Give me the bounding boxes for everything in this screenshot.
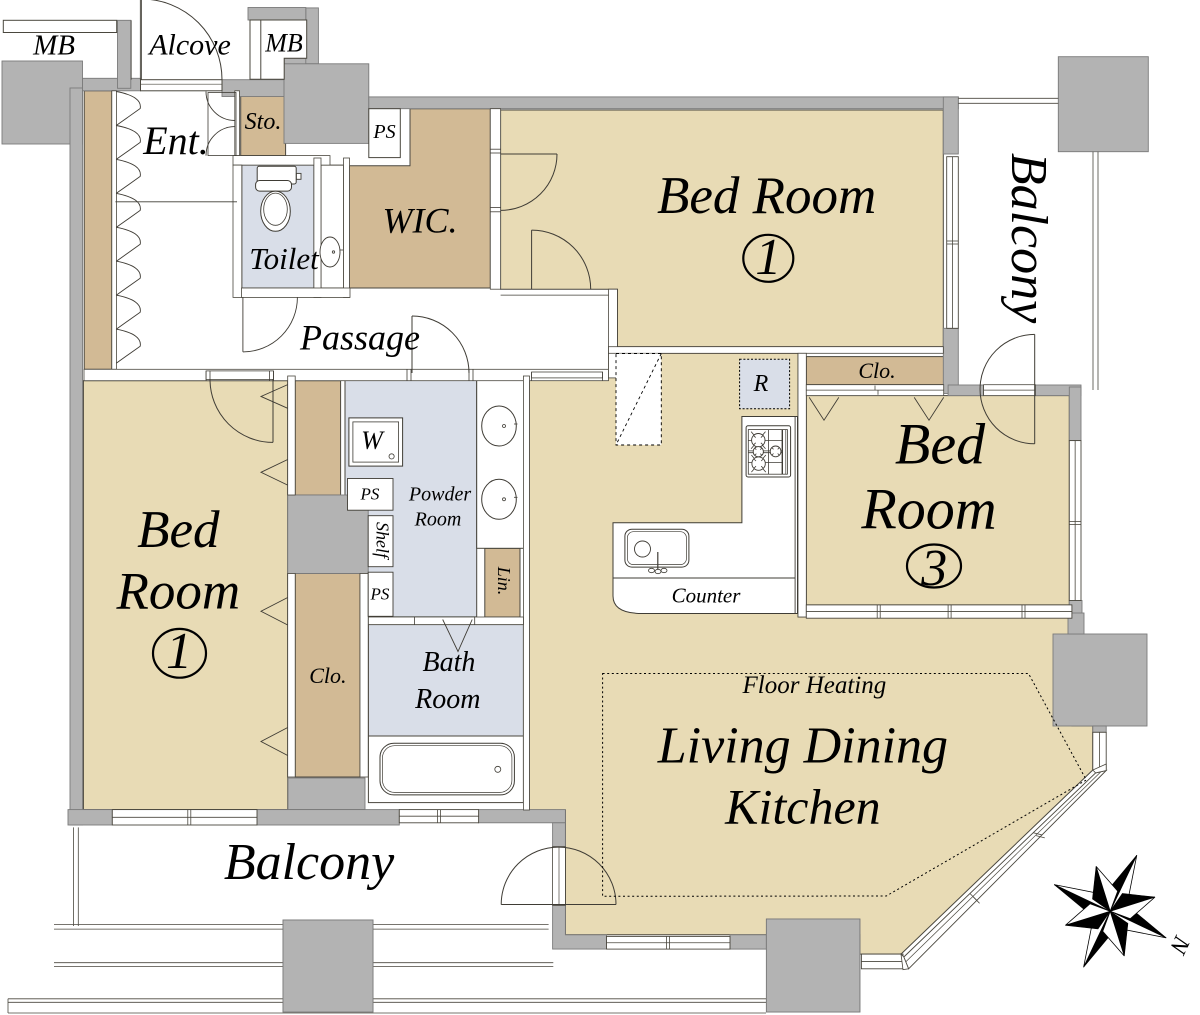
svg-text:PS: PS	[370, 584, 390, 603]
svg-text:Lin.: Lin.	[494, 566, 514, 596]
svg-text:Floor Heating: Floor Heating	[742, 672, 887, 699]
svg-text:Room: Room	[860, 476, 996, 541]
svg-text:PS: PS	[372, 121, 395, 143]
svg-text:MB: MB	[32, 30, 75, 62]
svg-text:Clo.: Clo.	[309, 663, 346, 688]
svg-text:MB: MB	[264, 28, 303, 57]
svg-text:Room: Room	[414, 509, 462, 531]
svg-text:Bed: Bed	[895, 411, 986, 476]
svg-text:Living Dining: Living Dining	[657, 717, 948, 774]
svg-text:Bath: Bath	[423, 647, 476, 678]
svg-text:PS: PS	[360, 484, 380, 503]
svg-text:Passage: Passage	[299, 317, 420, 357]
svg-text:Ent.: Ent.	[142, 118, 209, 163]
svg-text:R: R	[753, 371, 769, 397]
svg-text:Counter: Counter	[672, 583, 742, 607]
svg-text:Bed: Bed	[137, 501, 220, 559]
svg-text:Alcove: Alcove	[147, 28, 231, 61]
svg-text:Room: Room	[414, 684, 480, 715]
svg-text:Powder: Powder	[408, 484, 471, 506]
svg-text:Kitchen: Kitchen	[724, 778, 881, 834]
svg-text:Room: Room	[115, 563, 240, 621]
svg-text:Clo.: Clo.	[858, 358, 895, 383]
svg-text:Shelf: Shelf	[372, 522, 392, 561]
svg-text:Sto.: Sto.	[245, 109, 282, 135]
svg-text:1: 1	[166, 623, 192, 680]
svg-text:WIC.: WIC.	[383, 200, 458, 240]
svg-text:Toilet: Toilet	[249, 241, 320, 276]
svg-text:Bed Room: Bed Room	[657, 167, 876, 225]
svg-text:Balcony: Balcony	[1000, 153, 1057, 324]
svg-text:1: 1	[755, 229, 781, 286]
svg-text:3: 3	[920, 540, 947, 597]
svg-text:W: W	[361, 426, 385, 455]
svg-text:Balcony: Balcony	[224, 834, 395, 891]
